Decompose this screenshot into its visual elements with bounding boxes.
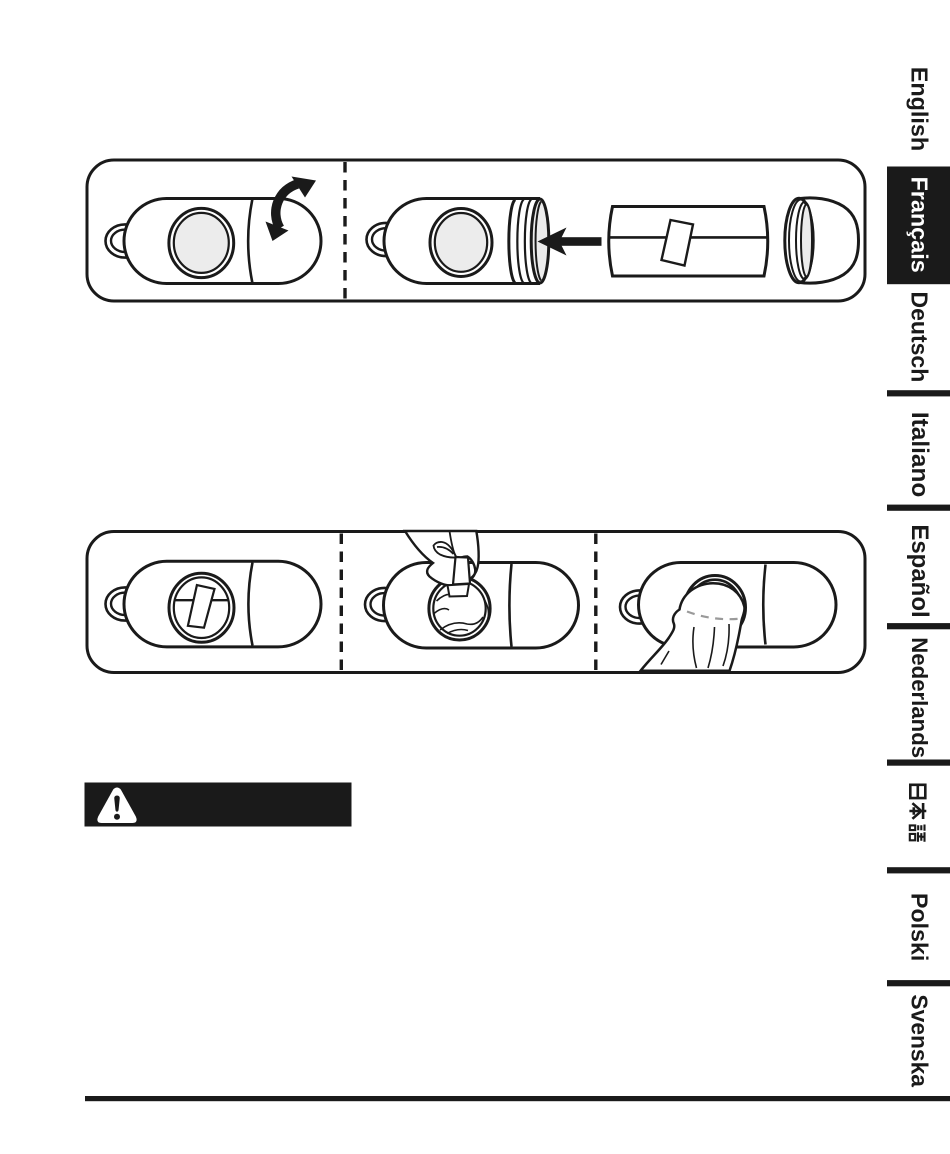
svg-text:Polski: Polski	[907, 893, 933, 961]
svg-text:English: English	[907, 67, 933, 151]
svg-text:Nederlands: Nederlands	[907, 637, 932, 758]
svg-text:Español: Español	[906, 524, 933, 617]
svg-text:Français: Français	[907, 176, 933, 272]
svg-text:Deutsch: Deutsch	[907, 292, 933, 383]
svg-text:Svenska: Svenska	[907, 994, 933, 1087]
svg-text:Italiano: Italiano	[906, 412, 933, 497]
